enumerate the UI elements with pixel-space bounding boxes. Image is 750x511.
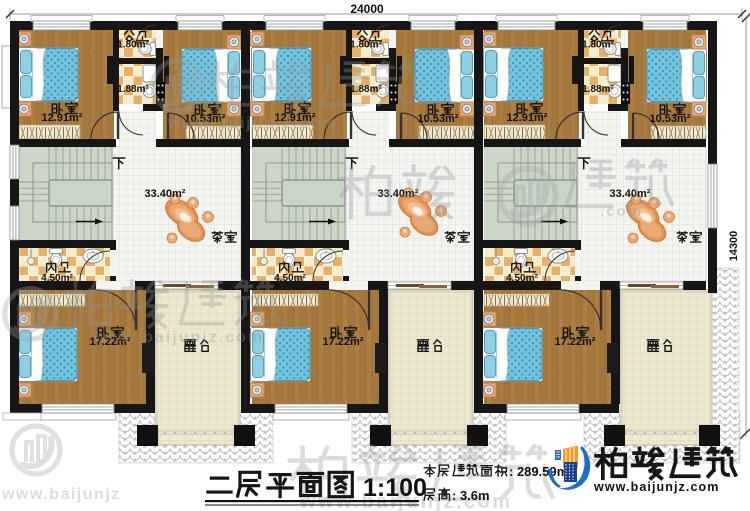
svg-text:www.baijunjz: www.baijunjz	[1, 486, 121, 503]
svg-text:1:100: 1:100	[363, 474, 427, 502]
svg-text:10.53m²: 10.53m²	[418, 113, 459, 125]
svg-text:www.baijunjz.com: www.baijunjz.com	[93, 329, 264, 346]
svg-text:14300: 14300	[728, 231, 740, 262]
svg-text:4.50m²: 4.50m²	[41, 273, 73, 284]
svg-text:1.80m²: 1.80m²	[117, 40, 149, 51]
svg-text:33.40m²: 33.40m²	[145, 188, 186, 200]
svg-text:12.91m²: 12.91m²	[507, 112, 548, 124]
svg-text:1.88m²: 1.88m²	[582, 84, 614, 95]
svg-text:10.53m²: 10.53m²	[650, 113, 691, 125]
svg-text:17.22m²: 17.22m²	[323, 336, 364, 348]
svg-text:: 289.59m: : 289.59m	[509, 464, 568, 479]
svg-text:4.50m²: 4.50m²	[274, 273, 306, 284]
svg-text:: 3.6m: : 3.6m	[452, 488, 490, 503]
svg-text:4.50m²: 4.50m²	[506, 273, 538, 284]
svg-text:1.80m²: 1.80m²	[350, 40, 382, 51]
svg-text:12.91m²: 12.91m²	[42, 112, 83, 124]
svg-text:www.baijunjz.com: www.baijunjz.com	[167, 115, 338, 132]
svg-text:www.baijunjz.com: www.baijunjz.com	[593, 480, 719, 494]
svg-text:17.22m²: 17.22m²	[555, 336, 596, 348]
svg-text:33.40m²: 33.40m²	[610, 188, 651, 200]
svg-text:1.88m²: 1.88m²	[117, 84, 149, 95]
svg-text:.com: .com	[600, 203, 643, 220]
svg-text:1.80m²: 1.80m²	[582, 40, 614, 51]
svg-text:24000: 24000	[350, 2, 384, 16]
